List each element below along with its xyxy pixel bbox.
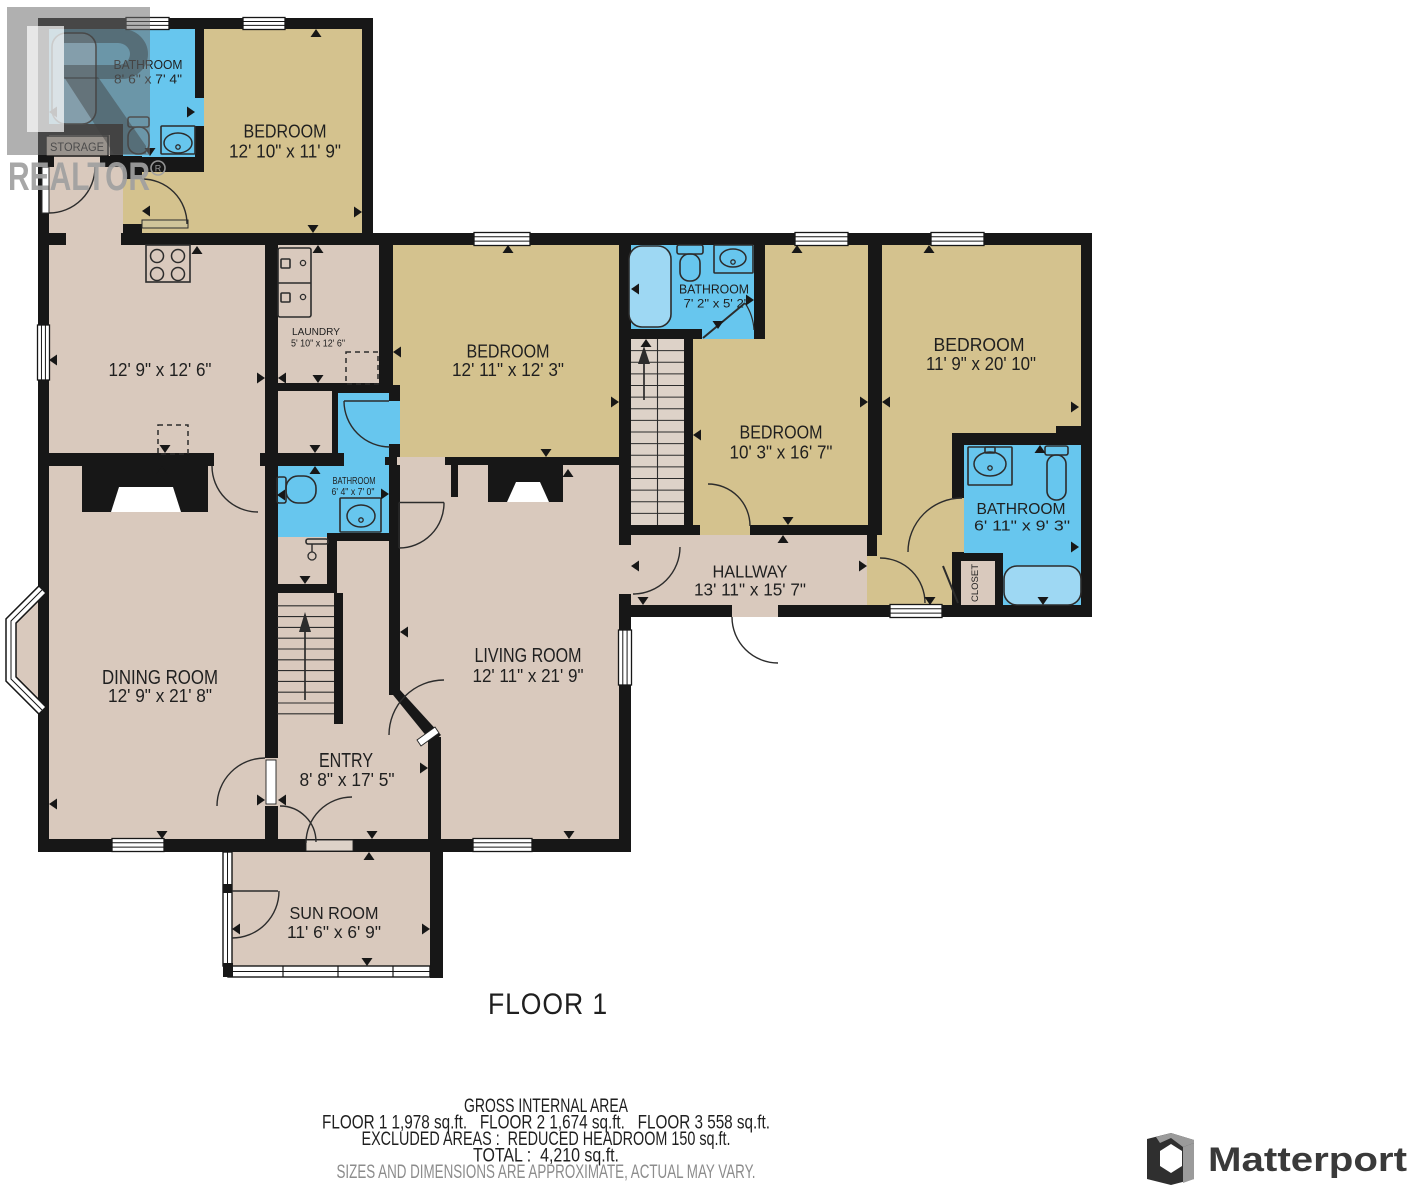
svg-text:LAUNDRY: LAUNDRY	[292, 326, 340, 338]
svg-text:BATHROOM: BATHROOM	[977, 501, 1066, 518]
svg-text:Matterport: Matterport	[1208, 1141, 1407, 1179]
svg-text:R: R	[155, 164, 162, 174]
svg-text:CLOSET: CLOSET	[970, 564, 981, 602]
svg-text:12' 10" x 11' 9": 12' 10" x 11' 9"	[229, 142, 341, 162]
svg-text:13' 11" x 15' 7": 13' 11" x 15' 7"	[694, 580, 806, 600]
svg-text:12' 11" x 12' 3": 12' 11" x 12' 3"	[452, 360, 564, 380]
svg-text:7' 2" x 5' 2": 7' 2" x 5' 2"	[684, 297, 749, 311]
svg-text:12' 9" x 12' 6": 12' 9" x 12' 6"	[109, 360, 212, 380]
svg-text:BEDROOM: BEDROOM	[467, 342, 550, 362]
svg-text:ENTRY: ENTRY	[319, 750, 373, 772]
svg-text:11' 9" x 20' 10": 11' 9" x 20' 10"	[926, 354, 1036, 374]
svg-text:BATHROOM: BATHROOM	[333, 475, 376, 487]
svg-text:6' 11" x 9' 3": 6' 11" x 9' 3"	[974, 518, 1070, 535]
svg-text:11' 6" x 6' 9": 11' 6" x 6' 9"	[287, 922, 381, 942]
svg-text:12' 9" x 21' 8": 12' 9" x 21' 8"	[108, 686, 212, 706]
svg-text:FLOOR 1: FLOOR 1	[488, 988, 608, 1021]
svg-text:SIZES AND DIMENSIONS ARE APPRO: SIZES AND DIMENSIONS ARE APPROXIMATE, AC…	[337, 1162, 756, 1183]
svg-text:HALLWAY: HALLWAY	[713, 562, 788, 582]
svg-text:BEDROOM: BEDROOM	[244, 122, 327, 142]
svg-text:BATHROOM: BATHROOM	[679, 283, 749, 297]
svg-text:REALTOR: REALTOR	[8, 155, 150, 199]
svg-text:12' 11" x 21' 9": 12' 11" x 21' 9"	[473, 666, 584, 686]
svg-text:5' 10" x 12' 6": 5' 10" x 12' 6"	[291, 339, 345, 350]
svg-text:SUN ROOM: SUN ROOM	[290, 903, 379, 923]
svg-text:8' 8" x 17' 5": 8' 8" x 17' 5"	[300, 770, 395, 790]
svg-text:10' 3" x 16' 7": 10' 3" x 16' 7"	[730, 443, 833, 463]
svg-text:BEDROOM: BEDROOM	[934, 335, 1025, 355]
svg-text:LIVING ROOM: LIVING ROOM	[475, 644, 582, 667]
svg-text:6' 4" x 7' 0": 6' 4" x 7' 0"	[332, 487, 375, 498]
svg-text:BEDROOM: BEDROOM	[740, 423, 823, 443]
